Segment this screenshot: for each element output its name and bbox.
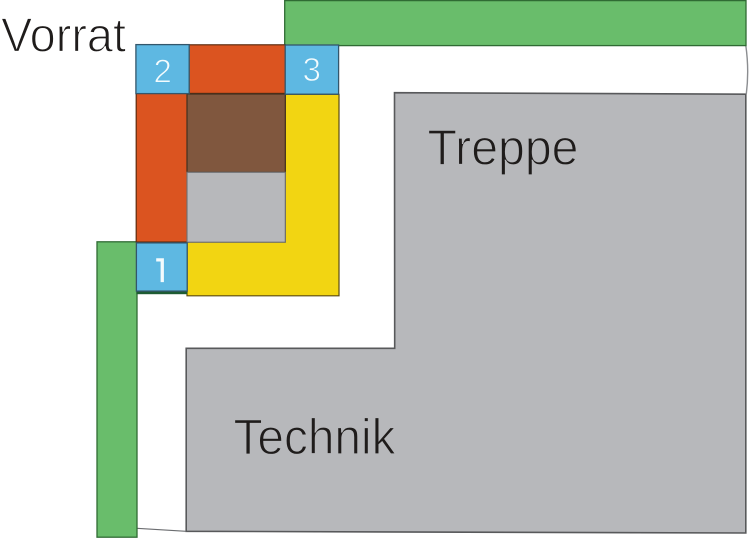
svg-text:Vorrat: Vorrat	[1, 9, 126, 62]
svg-text:2: 2	[154, 53, 172, 90]
svg-text:3: 3	[303, 51, 321, 88]
svg-text:Technik: Technik	[234, 409, 397, 465]
svg-text:Treppe: Treppe	[428, 120, 579, 176]
